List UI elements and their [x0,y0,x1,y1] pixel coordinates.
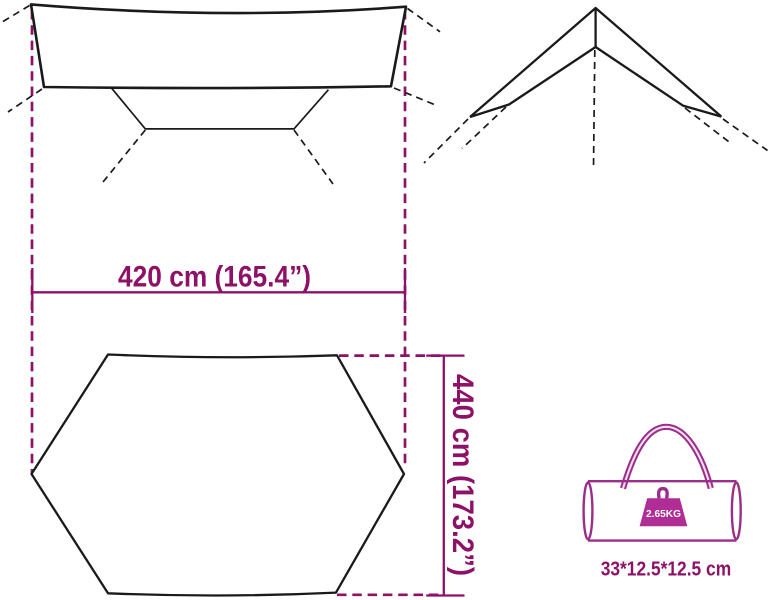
svg-text:2.65KG: 2.65KG [646,508,681,520]
svg-text:440 cm (173.2”): 440 cm (173.2”) [446,374,479,576]
svg-text:33*12.5*12.5 cm: 33*12.5*12.5 cm [601,559,732,581]
svg-text:420 cm (165.4”): 420 cm (165.4”) [118,261,311,294]
